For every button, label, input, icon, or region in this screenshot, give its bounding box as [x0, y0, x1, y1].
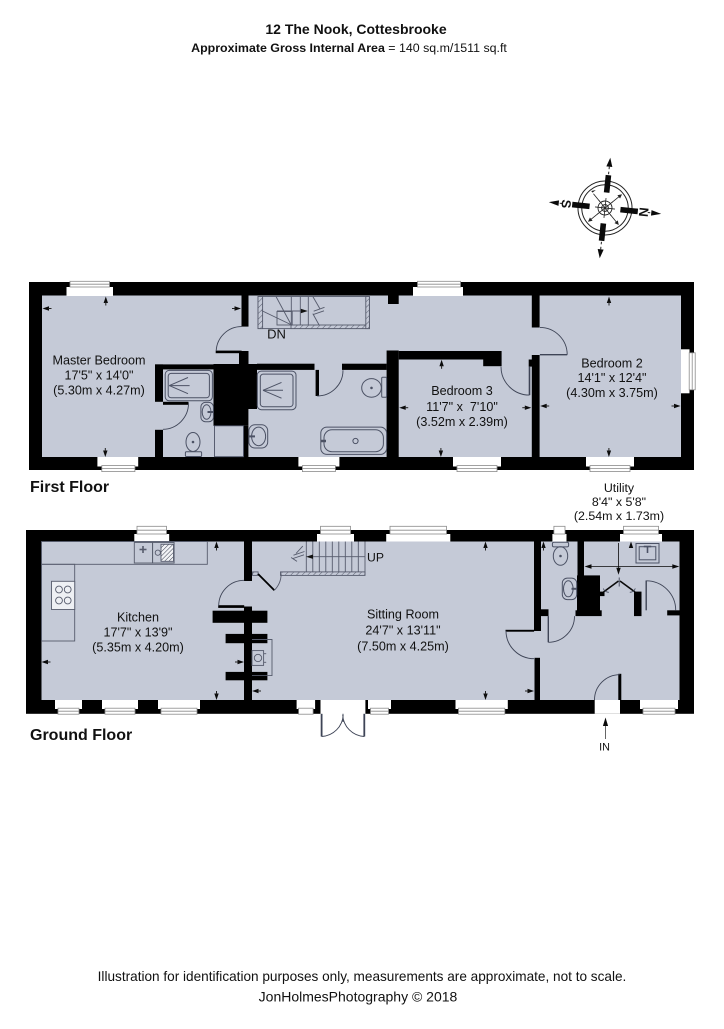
svg-text:Sitting Room: Sitting Room	[367, 608, 439, 622]
svg-text:Bedroom 3: Bedroom 3	[431, 384, 493, 398]
svg-text:14'1" x 12'4": 14'1" x 12'4"	[577, 371, 646, 385]
svg-text:11'7" x 7'10": 11'7" x 7'10"	[426, 400, 498, 414]
svg-text:24'7" x 13'11": 24'7" x 13'11"	[365, 624, 440, 638]
svg-text:IN: IN	[599, 742, 610, 754]
svg-text:17'7" x 13'9": 17'7" x 13'9"	[103, 626, 172, 640]
svg-text:JonHolmesPhotography © 2018: JonHolmesPhotography © 2018	[259, 989, 458, 1005]
svg-text:Ground Floor: Ground Floor	[30, 727, 132, 744]
svg-text:DN: DN	[267, 327, 286, 342]
svg-text:Kitchen: Kitchen	[117, 611, 159, 625]
svg-text:17'5" x 14'0": 17'5" x 14'0"	[64, 369, 133, 383]
svg-text:N: N	[636, 207, 652, 218]
svg-text:(7.50m x 4.25m): (7.50m x 4.25m)	[357, 640, 449, 654]
svg-text:UP: UP	[367, 551, 384, 565]
svg-text:S: S	[558, 199, 574, 210]
svg-text:Master Bedroom: Master Bedroom	[52, 354, 145, 368]
svg-text:Bedroom 2: Bedroom 2	[581, 357, 643, 371]
svg-text:First Floor: First Floor	[30, 479, 109, 496]
svg-text:(2.54m x 1.73m): (2.54m x 1.73m)	[574, 509, 664, 523]
svg-text:(5.30m x 4.27m): (5.30m x 4.27m)	[53, 384, 145, 398]
svg-text:(4.30m x 3.75m): (4.30m x 3.75m)	[566, 386, 658, 400]
svg-text:Utility: Utility	[604, 481, 635, 495]
svg-text:(5.35m x 4.20m): (5.35m x 4.20m)	[92, 641, 184, 655]
svg-text:Approximate Gross Internal Are: Approximate Gross Internal Area = 140 sq…	[191, 41, 507, 55]
svg-text:8'4" x 5'8": 8'4" x 5'8"	[592, 495, 646, 509]
svg-text:12 The Nook, Cottesbrooke: 12 The Nook, Cottesbrooke	[265, 21, 446, 37]
svg-text:(3.52m x 2.39m): (3.52m x 2.39m)	[416, 415, 508, 429]
svg-text:Illustration for identificatio: Illustration for identification purposes…	[98, 969, 627, 984]
